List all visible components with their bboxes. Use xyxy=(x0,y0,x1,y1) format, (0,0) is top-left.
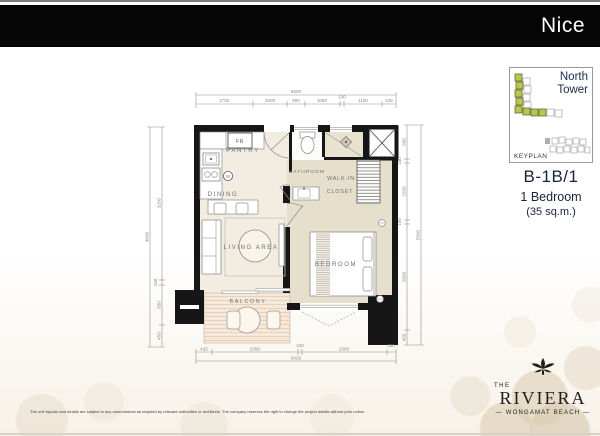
bathroom-window xyxy=(294,125,318,132)
elevator-shaft xyxy=(368,128,397,159)
bathroom-label: BATHROOM xyxy=(289,169,325,175)
fleur-ornament-icon xyxy=(530,358,556,377)
dim-bottom-0: 425 xyxy=(200,347,208,352)
disclaimer-text: The unit layouts and details are subject… xyxy=(30,409,365,414)
sliding-door xyxy=(222,291,258,294)
dim-right-4: 2800 xyxy=(402,271,407,282)
unit-area: (35 sq.m.) xyxy=(503,206,599,218)
dining-set xyxy=(208,200,258,214)
unit-info: B-1B/1 1 Bedroom (35 sq.m.) xyxy=(503,167,599,218)
bottom-edge-line xyxy=(0,433,600,435)
dim-left-2: 850 xyxy=(157,301,162,309)
living-label: LIVING AREA xyxy=(224,245,279,251)
bedroom-label: BEDROOM xyxy=(315,262,357,268)
walkin-label-1: WALK-IN xyxy=(327,176,355,182)
dim-right-5: 400 xyxy=(402,333,407,341)
walkin-label-2: CLOSET xyxy=(327,189,353,195)
dim-bottom-1: 2350 xyxy=(250,347,261,352)
dim-top-5: 1150 xyxy=(358,98,368,103)
washer-label: W xyxy=(226,174,231,179)
bathroom-left-wall xyxy=(289,131,292,172)
keyplan-box: North Tower KEYPLAN xyxy=(509,67,593,163)
dim-top-6: 425 xyxy=(385,98,393,103)
balcony-chair xyxy=(227,311,240,329)
dim-top-1: 1000 xyxy=(265,98,276,103)
dining-chair xyxy=(236,203,248,214)
dim-top-total: 5600 xyxy=(291,89,302,94)
dining-label: DINING xyxy=(208,192,239,198)
dim-left-total: 4600 xyxy=(145,231,150,242)
dim-bottom-total: 5425 xyxy=(291,356,302,361)
dim-bottom-4: 250 xyxy=(387,343,395,348)
floor-plan: FR W xyxy=(130,52,440,382)
dim-right-3: 100 xyxy=(397,218,402,226)
window-swing-dashes xyxy=(302,312,356,326)
dim-top-2: 550 xyxy=(292,98,300,103)
closet-window xyxy=(330,125,352,132)
hall-wall-upper xyxy=(283,186,290,203)
brochure-page: Nice xyxy=(0,0,600,436)
keyplan-hatched-unit xyxy=(545,138,550,144)
brand-logo: THE RIVIERA — WONGAMAT BEACH — xyxy=(488,358,598,416)
left-wall xyxy=(194,125,200,297)
bottom-right-block xyxy=(368,295,398,345)
balcony-label: BALCONY xyxy=(230,299,267,305)
dim-top-3: 1060 xyxy=(317,98,328,103)
dim-left-0: 3200 xyxy=(157,197,162,208)
pantry-label: PANTRY xyxy=(226,148,259,154)
sliding-door xyxy=(256,288,290,291)
balcony-block-slit xyxy=(180,305,199,309)
balcony-chair xyxy=(267,311,280,329)
dim-right-0: 900 xyxy=(402,138,407,146)
dim-left-1: 100 xyxy=(153,278,158,286)
toilet-icon xyxy=(301,137,314,154)
logo-name: RIVIERA xyxy=(488,389,598,407)
dim-right-2: 1500 xyxy=(402,186,407,197)
dim-left-3: 450 xyxy=(157,332,162,340)
dim-right-1: 100 xyxy=(397,157,402,165)
dining-chair xyxy=(214,203,226,214)
tower-name: North Tower xyxy=(538,71,588,97)
bedroom-window-opening xyxy=(300,303,358,310)
dim-top-0: 1725 xyxy=(219,98,230,103)
keyplan-caption: KEYPLAN xyxy=(514,153,548,160)
entrance-opening xyxy=(264,125,290,132)
wardrobe-shelves xyxy=(357,160,380,203)
dim-top-4: 100 xyxy=(338,95,346,100)
unit-code: B-1B/1 xyxy=(503,167,599,187)
tv-console xyxy=(279,224,284,266)
dim-bottom-3: 2300 xyxy=(339,347,350,352)
bedroom-furniture xyxy=(310,220,385,303)
dim-bottom-2: 100 xyxy=(296,343,304,348)
top-edge-line xyxy=(0,0,600,2)
pillow xyxy=(363,237,372,261)
fridge-label: FR xyxy=(236,139,244,145)
title-banner: Nice xyxy=(0,5,600,47)
page-title: Nice xyxy=(541,14,585,38)
dim-right-total: 5800 xyxy=(416,229,421,240)
pillow xyxy=(363,267,372,291)
logo-tagline: — WONGAMAT BEACH — xyxy=(488,410,598,416)
unit-type: 1 Bedroom xyxy=(503,190,599,204)
shower-closet-wall xyxy=(324,157,366,160)
bathroom-right-wall xyxy=(322,131,325,157)
sofa-icon xyxy=(202,220,221,274)
